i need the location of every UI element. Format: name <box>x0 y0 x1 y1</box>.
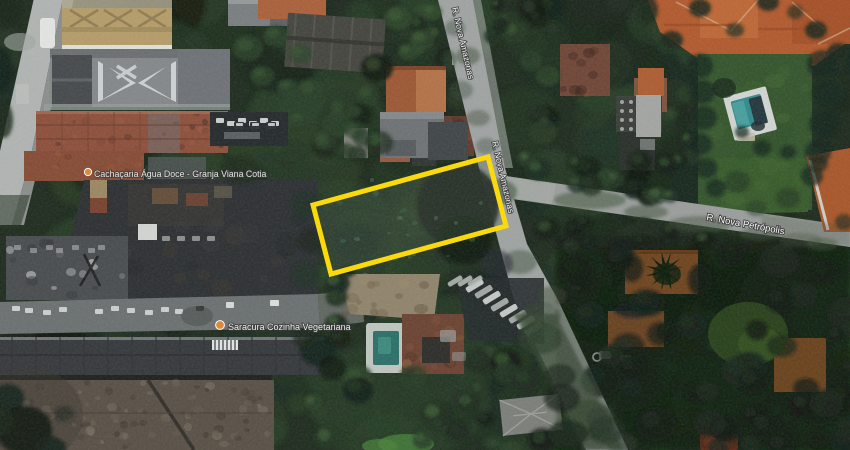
svg-text:Cachaçaria Água Doce - Granja: Cachaçaria Água Doce - Granja Viana Coti… <box>94 169 267 179</box>
svg-text:Saracura Cozinha Vegetariana: Saracura Cozinha Vegetariana <box>228 322 351 332</box>
